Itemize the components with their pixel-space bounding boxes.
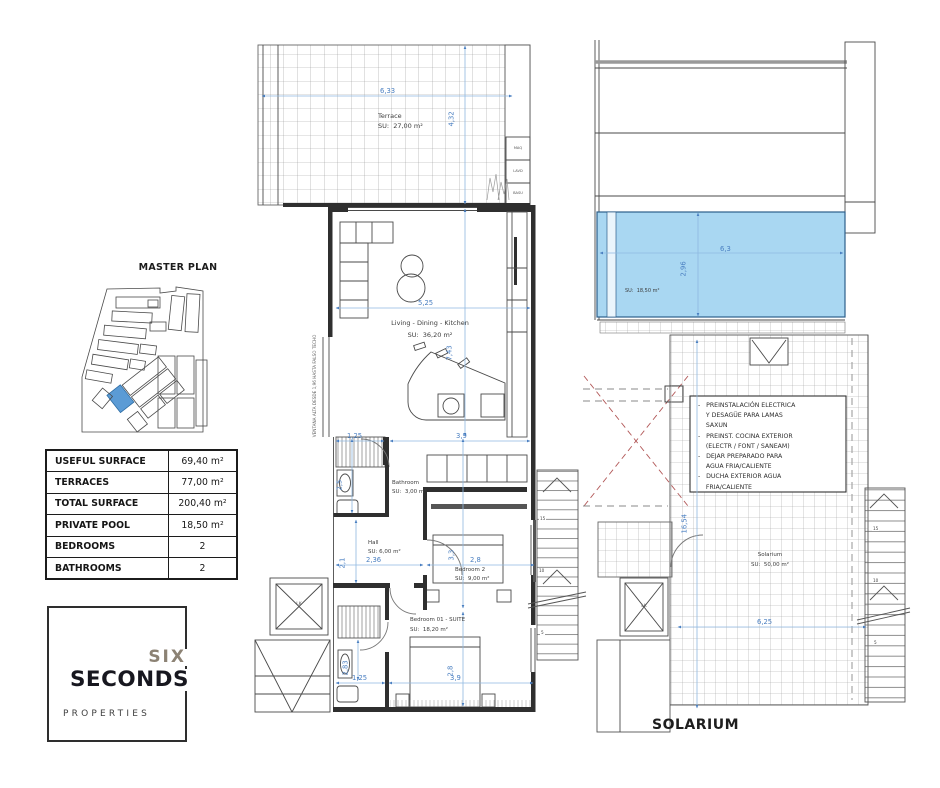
bedroom2-label: Bedroom 2	[455, 567, 485, 574]
door-arc	[390, 588, 416, 614]
note-line: Y DESAGÜE PARA LAMAS	[698, 411, 795, 421]
row-label: TOTAL SURFACE	[47, 494, 169, 514]
dim-solarium-height: 16,54	[681, 514, 689, 533]
private-pool	[597, 212, 845, 317]
dim-pool-height: 2,96	[680, 261, 688, 276]
suite-area: SU: 18,20 m²	[410, 627, 448, 634]
note-line: AGUA FRIA/CALIENTE	[698, 462, 795, 472]
table-row: BEDROOMS2	[47, 536, 236, 557]
stair-number: 5	[873, 640, 878, 645]
shower	[338, 606, 380, 638]
solarium-area: SU: 50,00 m²	[738, 562, 802, 569]
dim-terrace-height: 4,32	[448, 111, 456, 126]
surface-table: USEFUL SURFACE69,40 m² TERRACES77,00 m² …	[45, 449, 238, 580]
dim-solarium-width: 6,25	[757, 618, 772, 626]
row-label: BATHROOMS	[47, 558, 169, 578]
round-table	[397, 274, 425, 302]
row-value: 2	[169, 537, 236, 557]
living-area: SU: 36,20 m²	[380, 331, 480, 339]
toilet	[337, 686, 358, 702]
hall-label: Hall	[368, 540, 379, 547]
preinstallation-notes: - PREINSTALACIÓN ELECTRICA Y DESAGÜE PAR…	[698, 401, 795, 493]
row-label: BEDROOMS	[47, 537, 169, 557]
stair-number: 5	[540, 630, 545, 635]
main-plan-walls	[255, 45, 586, 712]
row-label: TERRACES	[47, 472, 169, 492]
note-line: - DEJAR PREPARADO PARA	[698, 452, 795, 462]
table-row: BATHROOMS2	[47, 557, 236, 578]
note-line: (ELECTR / FONT / SANEAM)	[698, 442, 795, 452]
staircase	[528, 470, 586, 660]
lift-label: LK	[632, 604, 656, 610]
stair-number: 15	[539, 516, 546, 521]
table-row: PRIVATE POOL18,50 m²	[47, 514, 236, 535]
logo-seconds-text: SECONDS	[68, 669, 191, 691]
terrace-area: SU: 27,00 m²	[378, 122, 423, 130]
floor-plan-sheet: MASTER PLAN USEFUL SURFACE69,40 m² TERRA…	[0, 0, 940, 788]
dim-hall-width: 2,36	[366, 556, 381, 564]
sofa	[340, 222, 393, 318]
lift-label: LK	[288, 602, 310, 608]
kitchen-island	[408, 342, 505, 420]
dim-bed2-top: 3,9	[456, 432, 467, 440]
stair-number: 10	[872, 578, 879, 583]
dim-terrace-width: 6,33	[380, 87, 395, 95]
utility-box-label: LAVD	[507, 169, 529, 173]
dim-bath-width: 1,25	[347, 432, 362, 440]
dim-bath-height: 2,5	[336, 480, 344, 491]
note-line: SAXUN	[698, 421, 795, 431]
dim-suite-bath-width: 1,25	[352, 674, 367, 682]
pool-area: SU: 18,50 m²	[625, 288, 659, 294]
solarium-caption: SOLARIUM	[652, 717, 739, 733]
note-line: - PREINSTALACIÓN ELECTRICA	[698, 401, 795, 411]
solarium-plan-walls	[583, 40, 910, 732]
stair-number: 15	[872, 526, 879, 531]
dim-bed2-height: 3,3	[448, 550, 456, 561]
table-row: TOTAL SURFACE200,40 m²	[47, 493, 236, 514]
row-label: USEFUL SURFACE	[47, 451, 169, 471]
living-label: Living - Dining - Kitchen	[380, 319, 480, 327]
note-line: - PREINST. COCINA EXTERIOR	[698, 432, 795, 442]
table-row: TERRACES77,00 m²	[47, 471, 236, 492]
bed-suite	[396, 637, 495, 707]
closet	[427, 455, 527, 482]
solarium-label: Solarium	[738, 552, 802, 559]
terrace-label: Terrace	[378, 112, 402, 120]
utility-box-label: MAQ	[507, 146, 529, 150]
row-value: 200,40 m²	[169, 494, 236, 514]
row-label: PRIVATE POOL	[47, 515, 169, 535]
bathroom-label: Bathroom	[392, 480, 419, 487]
stair-number: 10	[538, 568, 545, 573]
dim-pool-width: 6,3	[720, 245, 731, 253]
note-line: - DUCHA EXTERIOR AGUA	[698, 472, 795, 482]
logo-six-text: SIX	[146, 649, 188, 666]
utility-box-label: BASU	[507, 191, 529, 195]
row-value: 2	[169, 558, 236, 578]
dim-suite-height: 2,8	[447, 666, 455, 677]
dim-living-height: 7,43	[446, 345, 454, 360]
dim-bed2-width: 2,8	[470, 556, 481, 564]
table-row: USEFUL SURFACE69,40 m²	[47, 451, 236, 471]
dim-suite-bath-height: 2,83	[342, 660, 350, 675]
bedroom2-area: SU: 9,00 m²	[455, 576, 489, 583]
master-plan-title: MASTER PLAN	[138, 262, 218, 273]
note-line: FRIA/CALIENTE	[698, 483, 795, 493]
suite-label: Bedroom 01 - SUITE	[410, 617, 465, 624]
row-value: 69,40 m²	[169, 451, 236, 471]
master-plan-sketch	[82, 287, 207, 432]
window-note: VENTANA ALTA DESDE 1,96 HASTA FALSO TECH…	[312, 335, 317, 438]
logo-properties-text: PROPERTIES	[63, 710, 150, 719]
hall-area: SU: 6,00 m²	[368, 549, 401, 556]
bathroom-area: SU: 3,00 m²	[392, 489, 426, 496]
roof-structure	[255, 640, 330, 712]
row-value: 18,50 m²	[169, 515, 236, 535]
shower	[336, 437, 385, 467]
row-value: 77,00 m²	[169, 472, 236, 492]
dim-hall-height: 2,1	[339, 558, 347, 569]
six-seconds-logo: SIX SECONDS PROPERTIES	[47, 606, 187, 742]
solarium-floor	[670, 335, 868, 705]
dim-living-width: 5,25	[418, 299, 433, 307]
